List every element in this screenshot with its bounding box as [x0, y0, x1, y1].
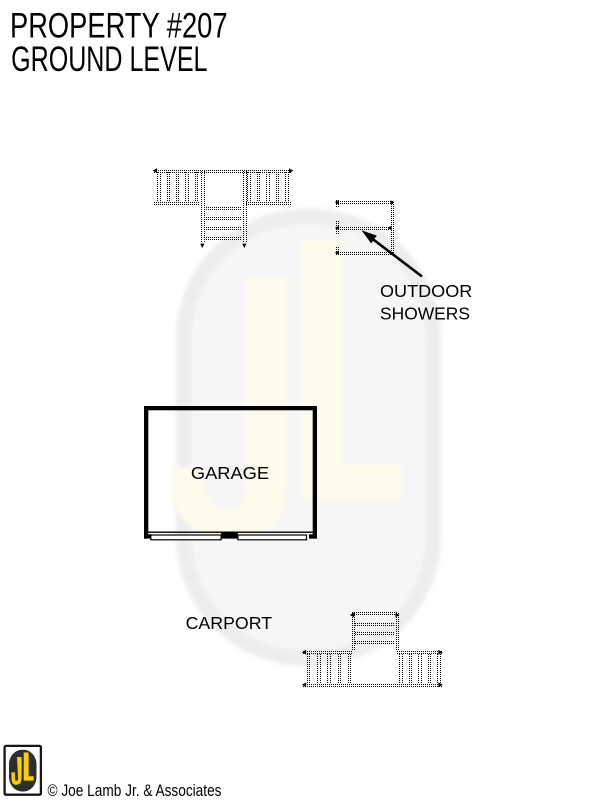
svg-text:CARPORT: CARPORT	[186, 613, 273, 633]
svg-text:SHOWERS: SHOWERS	[380, 303, 470, 323]
svg-text:© Joe Lamb Jr. & Associates: © Joe Lamb Jr. & Associates	[48, 782, 222, 800]
svg-text:GROUND LEVEL: GROUND LEVEL	[11, 40, 207, 79]
svg-text:GARAGE: GARAGE	[191, 463, 269, 483]
svg-text:OUTDOOR: OUTDOOR	[380, 281, 472, 301]
